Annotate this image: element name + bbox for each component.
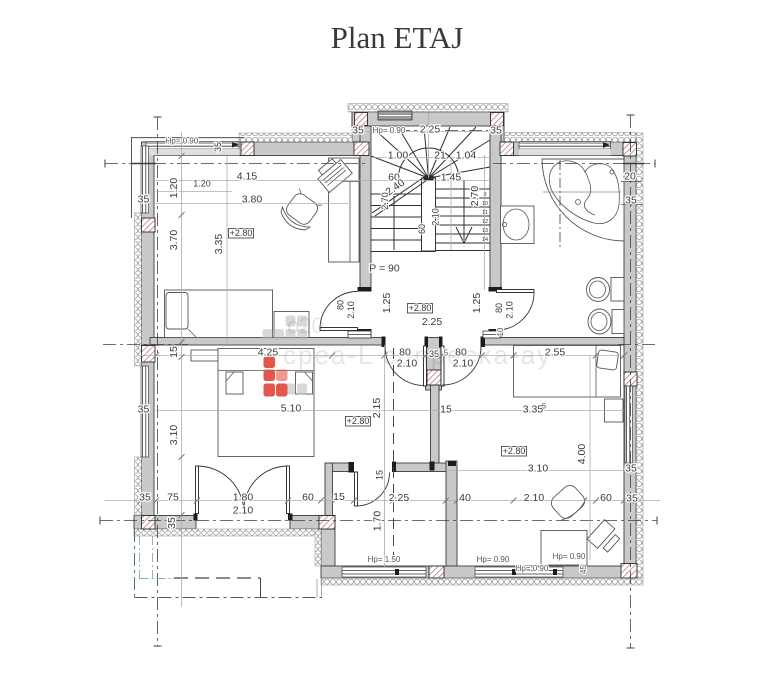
svg-text:4.00: 4.00 — [576, 444, 588, 465]
svg-text:15: 15 — [440, 404, 452, 416]
svg-text:40: 40 — [459, 492, 471, 504]
svg-text:12: 12 — [482, 219, 488, 225]
svg-text:2.10: 2.10 — [453, 358, 474, 370]
svg-text:1.80: 1.80 — [233, 491, 254, 503]
svg-text:2.25: 2.25 — [422, 316, 443, 328]
svg-text:10: 10 — [496, 327, 505, 336]
svg-text:2.25: 2.25 — [389, 492, 410, 504]
svg-text:3.10: 3.10 — [528, 463, 549, 475]
svg-text:5.10: 5.10 — [281, 403, 302, 415]
svg-text:1.45: 1.45 — [441, 172, 462, 184]
svg-text:60: 60 — [417, 224, 427, 234]
svg-text:5: 5 — [444, 349, 449, 358]
svg-text:35: 35 — [138, 194, 150, 206]
svg-text:35: 35 — [625, 463, 637, 475]
svg-text:1.20: 1.20 — [193, 179, 211, 189]
svg-text:Hp= 0.90: Hp= 0.90 — [166, 137, 199, 146]
svg-text:11: 11 — [482, 210, 488, 216]
svg-text:1.70: 1.70 — [372, 511, 384, 532]
svg-text:+2.80: +2.80 — [503, 446, 526, 456]
svg-text:+2.80: +2.80 — [347, 416, 370, 426]
svg-text:9: 9 — [483, 192, 486, 198]
svg-text:15: 15 — [168, 346, 180, 358]
svg-text:P = 90: P = 90 — [369, 263, 400, 275]
svg-text:2.15: 2.15 — [371, 398, 383, 419]
svg-text:Hp= 0.90: Hp= 0.90 — [477, 555, 510, 564]
svg-text:75: 75 — [167, 491, 179, 503]
svg-text:2.10: 2.10 — [524, 492, 545, 504]
svg-text:60: 60 — [600, 492, 612, 504]
svg-text:35: 35 — [626, 492, 638, 504]
svg-text:60: 60 — [302, 491, 314, 503]
svg-text:1.04: 1.04 — [456, 150, 477, 162]
svg-text:35: 35 — [166, 517, 178, 529]
svg-text:cpea-L conpecka-ay: cpea-L conpecka-ay — [283, 340, 552, 370]
svg-text:1.25: 1.25 — [471, 293, 483, 314]
svg-text:4.25: 4.25 — [258, 347, 279, 359]
svg-text:2.70: 2.70 — [469, 186, 481, 207]
svg-text:80: 80 — [336, 300, 346, 310]
svg-text:o20: o20 — [287, 313, 324, 338]
svg-text:3.10: 3.10 — [168, 425, 180, 446]
svg-text:Hp= 1.50: Hp= 1.50 — [368, 555, 401, 564]
svg-text:2.10: 2.10 — [397, 358, 418, 370]
svg-text:45: 45 — [579, 565, 588, 574]
svg-text:Hp= 0.90: Hp= 0.90 — [373, 126, 406, 135]
svg-text:5: 5 — [542, 404, 546, 411]
svg-text:35: 35 — [490, 125, 502, 137]
svg-text:4.15: 4.15 — [237, 171, 258, 183]
svg-text:14: 14 — [482, 237, 488, 243]
svg-text:35: 35 — [625, 195, 637, 207]
svg-text:1.25: 1.25 — [381, 293, 393, 314]
svg-text:35: 35 — [213, 142, 223, 152]
svg-text:1.20: 1.20 — [168, 178, 180, 199]
svg-text:10: 10 — [482, 201, 488, 207]
svg-text:35: 35 — [139, 491, 151, 503]
svg-text:2.10: 2.10 — [346, 301, 356, 319]
svg-text:2.70: 2.70 — [380, 192, 390, 210]
svg-text:3.80: 3.80 — [242, 194, 263, 206]
svg-text:3.35: 3.35 — [523, 404, 544, 416]
svg-text:20: 20 — [624, 171, 636, 183]
svg-text:Hp= 0.90: Hp= 0.90 — [553, 552, 586, 561]
svg-text:3.35: 3.35 — [213, 234, 225, 255]
svg-text:21: 21 — [434, 150, 446, 162]
svg-text:3.70: 3.70 — [168, 230, 180, 251]
svg-text:2.55: 2.55 — [545, 347, 566, 359]
svg-text:Plan ETAJ: Plan ETAJ — [331, 20, 464, 55]
svg-text:15: 15 — [333, 491, 345, 503]
svg-text:35: 35 — [352, 125, 364, 137]
svg-text:15: 15 — [375, 470, 385, 480]
svg-text:13: 13 — [482, 228, 488, 234]
svg-text:80: 80 — [494, 303, 504, 313]
svg-text:2.25: 2.25 — [420, 124, 441, 136]
svg-text:2.10: 2.10 — [431, 208, 441, 226]
svg-text:35: 35 — [429, 349, 439, 359]
svg-text:+2.80: +2.80 — [409, 303, 432, 313]
svg-text:+2.80: +2.80 — [230, 228, 253, 238]
svg-text:2.10: 2.10 — [505, 301, 515, 319]
svg-text:35: 35 — [138, 404, 150, 416]
svg-text:Hp= 0.90: Hp= 0.90 — [516, 564, 549, 573]
svg-text:1.00: 1.00 — [388, 150, 409, 162]
svg-text:2.10: 2.10 — [233, 504, 254, 516]
